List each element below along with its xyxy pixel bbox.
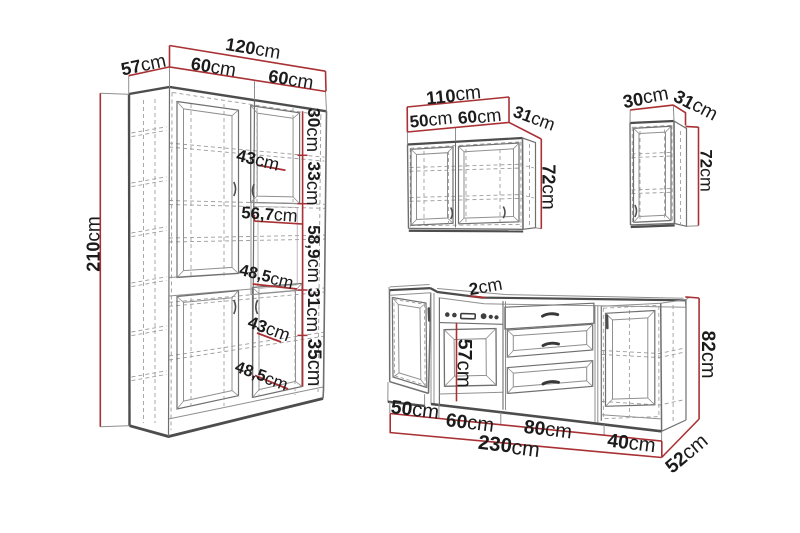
svg-text:57cm: 57cm xyxy=(453,339,476,388)
svg-text:82cm: 82cm xyxy=(697,331,719,379)
svg-text:58,9cm: 58,9cm xyxy=(304,225,324,283)
svg-text:31cm: 31cm xyxy=(303,288,324,332)
svg-text:33cm: 33cm xyxy=(303,161,324,205)
svg-text:210cm: 210cm xyxy=(83,216,104,271)
svg-text:35cm: 35cm xyxy=(303,339,325,387)
svg-text:50cm: 50cm xyxy=(409,108,454,132)
svg-text:72cm: 72cm xyxy=(697,149,717,191)
svg-text:30cm: 30cm xyxy=(303,108,324,152)
svg-text:60cm: 60cm xyxy=(457,103,502,128)
svg-text:72cm: 72cm xyxy=(538,164,559,209)
